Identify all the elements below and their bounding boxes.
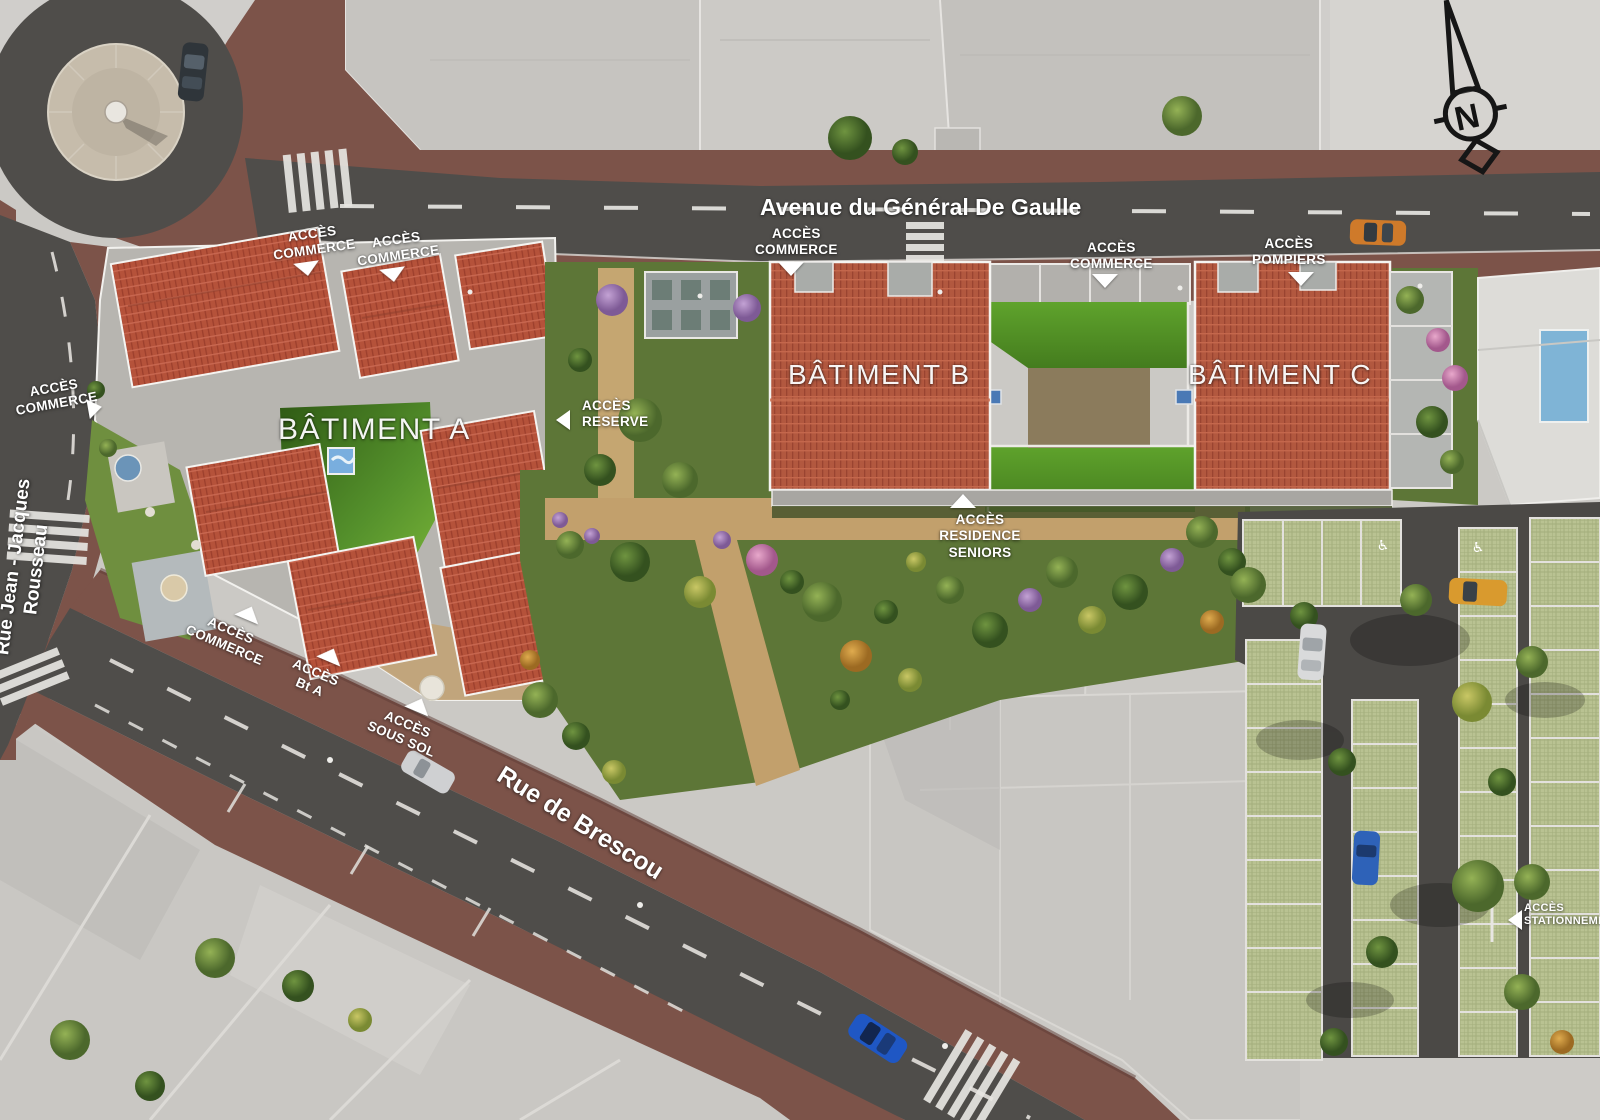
access-label-reserve: ACCÈS RESERVE (582, 398, 648, 431)
access-label-stationnement: ACCÈS STATIONNEMENT (1524, 902, 1600, 929)
street-name-avenue: Avenue du Général De Gaulle (760, 193, 1081, 221)
access-label-commerce-c: ACCÈS COMMERCE (1070, 240, 1153, 273)
batiment-a-block (85, 228, 562, 700)
access-label-commerce-b: ACCÈS COMMERCE (755, 226, 838, 259)
access-arrow-residence-icon (950, 494, 976, 508)
roundabout-island (48, 44, 184, 180)
batiment-a-label: BÂTIMENT A (278, 412, 471, 449)
car-orange-parking (1448, 578, 1507, 607)
access-arrow-commerce-c-icon (1092, 274, 1118, 288)
site-plan-rendering: ♿ ♿ (0, 0, 1600, 1120)
white-building-east (1478, 268, 1600, 505)
handicap-marking-2: ♿ (1472, 539, 1485, 555)
batiment-b-label: BÂTIMENT B (788, 358, 971, 392)
handicap-marking-1: ♿ (1377, 537, 1390, 553)
site-plan: ♿ ♿ (0, 0, 1600, 1120)
batiment-c-label: BÂTIMENT C (1188, 358, 1372, 392)
access-label-residence-seniors: ACCÈS RESIDENCE SENIORS (920, 512, 1040, 561)
access-arrow-reserve-icon (556, 410, 570, 430)
access-arrow-commerce-b-icon (778, 262, 804, 276)
car-white-parking (1297, 623, 1327, 681)
access-arrow-stationnement-icon (1508, 910, 1522, 930)
access-arrow-pompiers-icon (1288, 272, 1314, 286)
car-blue-parking (1352, 830, 1381, 885)
court-deck (1028, 368, 1150, 448)
court-lawn-north (988, 302, 1188, 368)
access-label-pompiers: ACCÈS POMPIERS (1252, 236, 1326, 269)
car-orange-avenue (1350, 219, 1407, 246)
